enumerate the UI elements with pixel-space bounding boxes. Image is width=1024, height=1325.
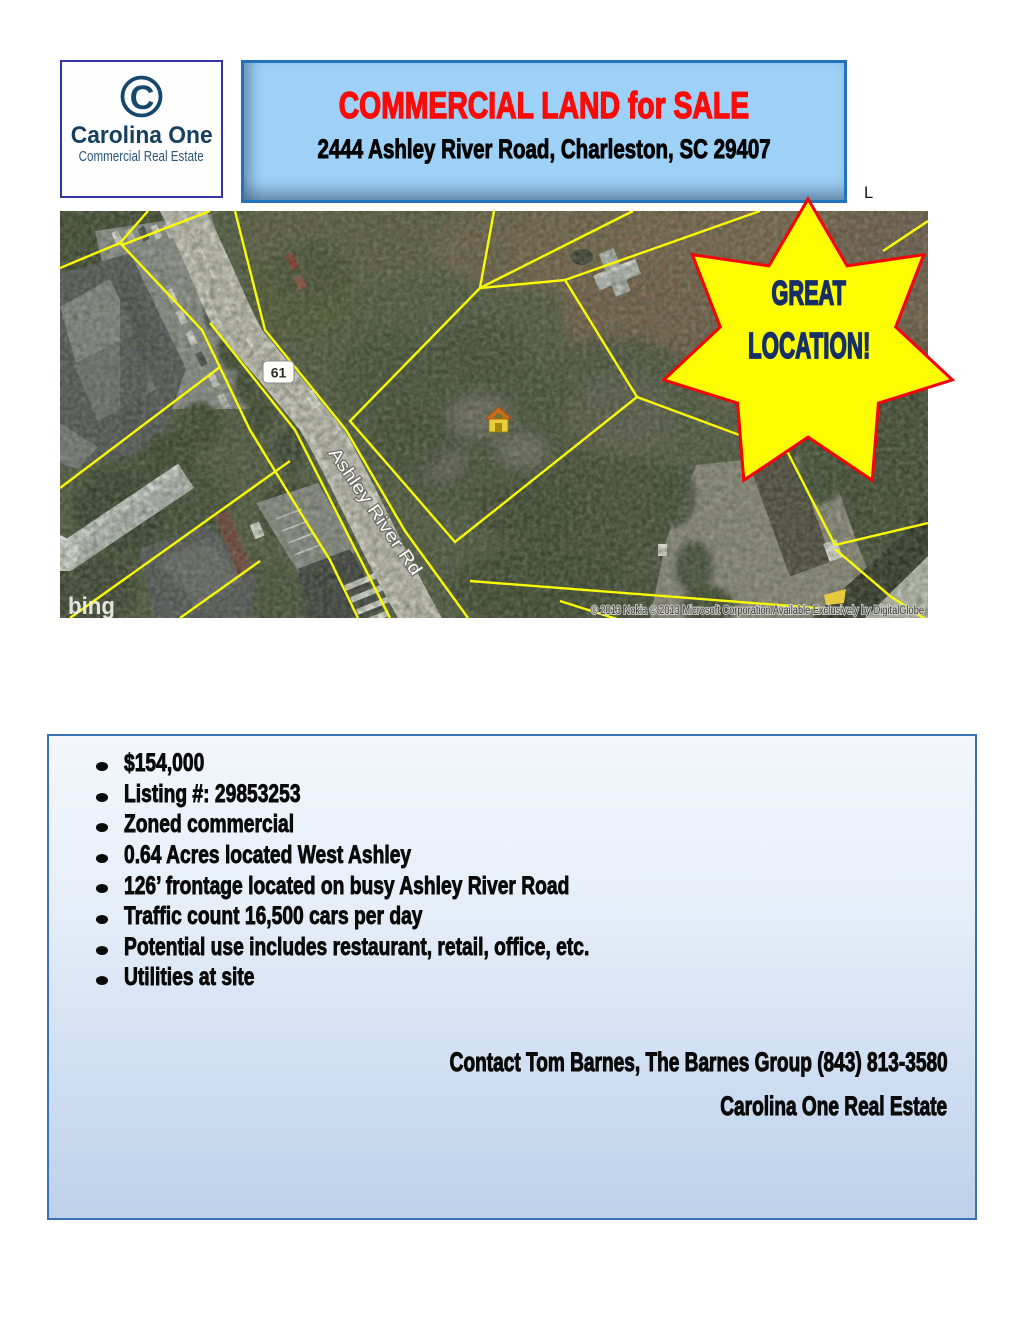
svg-text:C: C xyxy=(130,79,155,117)
svg-text:© 2013 Nokia © 2013 Microsoft: © 2013 Nokia © 2013 Microsoft Corporatio… xyxy=(591,605,924,617)
svg-text:GREAT: GREAT xyxy=(772,274,847,312)
svg-text:61: 61 xyxy=(271,365,287,381)
svg-text:LOCATION!: LOCATION! xyxy=(748,325,870,366)
svg-text:bing: bing xyxy=(68,593,115,618)
